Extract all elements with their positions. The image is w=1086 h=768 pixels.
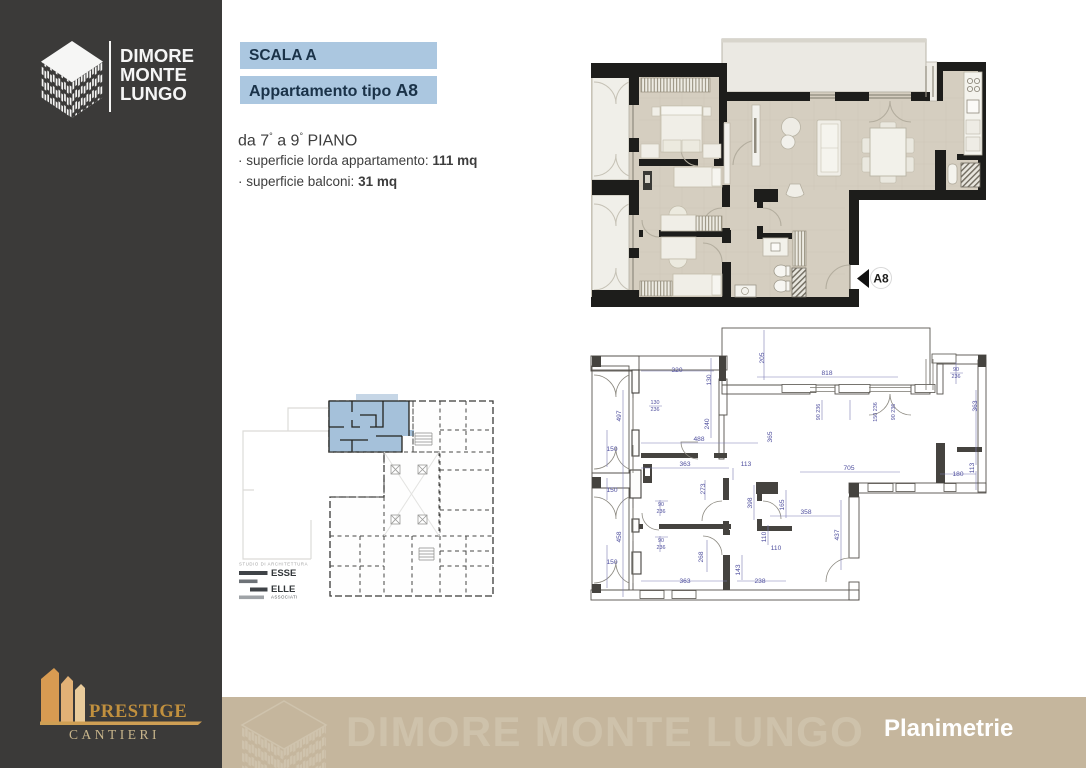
svg-text:CANTIERI: CANTIERI	[69, 727, 160, 742]
svg-text:150 236: 150 236	[873, 402, 879, 422]
svg-text:90 236: 90 236	[891, 404, 897, 421]
svg-text:240: 240	[704, 418, 711, 429]
svg-text:143: 143	[735, 564, 742, 575]
svg-text:437: 437	[834, 529, 841, 540]
svg-text:205: 205	[759, 352, 766, 363]
svg-text:458: 458	[616, 531, 623, 542]
svg-text:STUDIO DI ARCHITETTURA: STUDIO DI ARCHITETTURA	[239, 562, 308, 567]
svg-text:365: 365	[767, 431, 774, 442]
svg-text:113: 113	[741, 461, 752, 468]
svg-text:113: 113	[969, 462, 976, 473]
svg-text:150: 150	[606, 487, 617, 494]
svg-text:236: 236	[952, 374, 961, 380]
svg-text:358: 358	[800, 509, 811, 516]
svg-text:90: 90	[953, 367, 959, 373]
svg-text:497: 497	[616, 410, 623, 421]
svg-text:PRESTIGE: PRESTIGE	[89, 702, 187, 722]
svg-text:236: 236	[657, 509, 666, 515]
svg-text:A8: A8	[873, 272, 889, 286]
svg-text:130: 130	[706, 374, 713, 385]
svg-text:165: 165	[779, 499, 786, 510]
svg-text:90: 90	[658, 538, 664, 544]
svg-text:110: 110	[761, 531, 768, 542]
svg-text:268: 268	[698, 551, 705, 562]
svg-text:363: 363	[972, 400, 979, 411]
svg-text:818: 818	[821, 370, 832, 377]
svg-text:110: 110	[771, 545, 782, 552]
svg-text:ELLE: ELLE	[271, 584, 295, 595]
svg-text:ESSE: ESSE	[271, 568, 296, 579]
svg-text:705: 705	[843, 465, 854, 472]
svg-text:363: 363	[679, 578, 690, 585]
svg-text:180: 180	[952, 471, 963, 478]
svg-text:130: 130	[651, 400, 660, 406]
svg-text:273: 273	[700, 483, 707, 494]
svg-text:236: 236	[657, 545, 666, 551]
svg-text:488: 488	[693, 436, 704, 443]
svg-text:363: 363	[679, 461, 690, 468]
svg-text:150: 150	[606, 446, 617, 453]
svg-text:236: 236	[651, 407, 660, 413]
svg-text:238: 238	[754, 578, 765, 585]
svg-text:90 236: 90 236	[816, 404, 822, 421]
svg-text:320: 320	[671, 367, 682, 374]
svg-text:90: 90	[658, 502, 664, 508]
svg-text:398: 398	[747, 497, 754, 508]
svg-text:150: 150	[606, 559, 617, 566]
svg-text:ASSOCIATI: ASSOCIATI	[271, 595, 298, 600]
